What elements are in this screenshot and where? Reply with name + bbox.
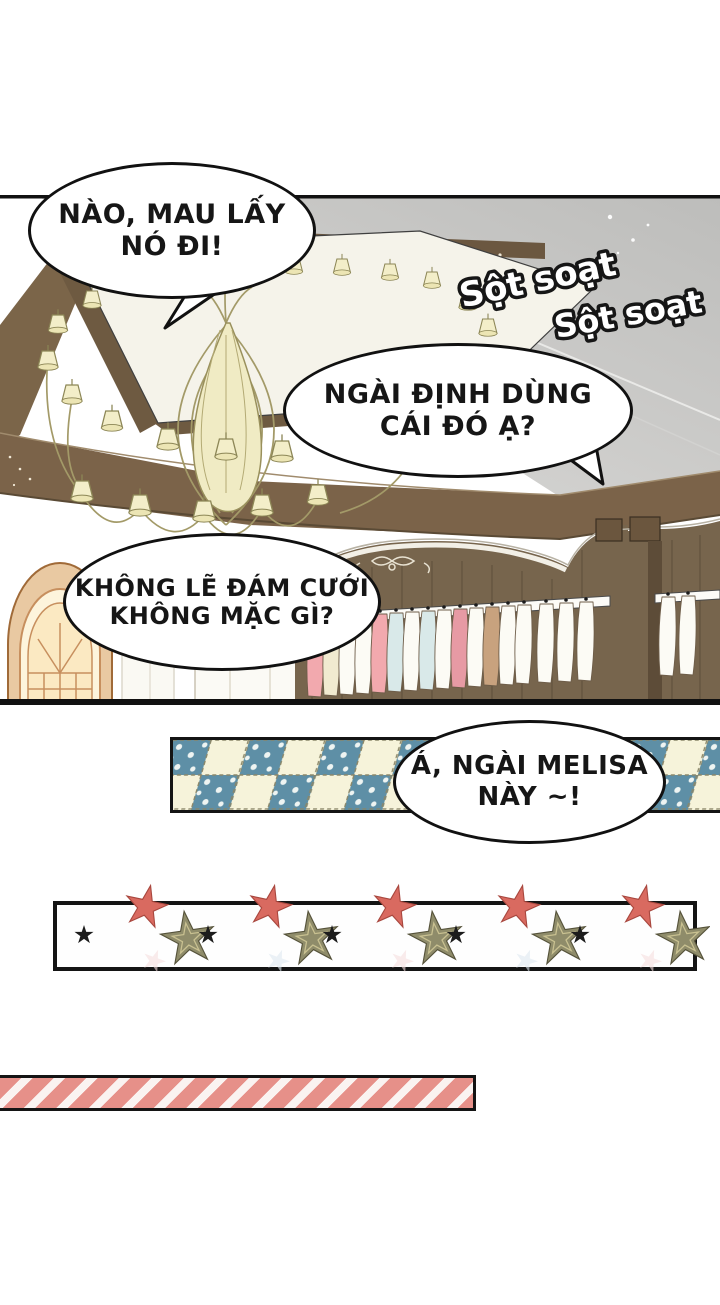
- speech-bubble-question: NGÀI ĐỊNH DÙNG CÁI ĐÓ Ạ?: [283, 343, 633, 478]
- speech-bubble-melisa: Á, NGÀI MELISA NÀY ~!: [393, 720, 666, 844]
- bubble-text: Á, NGÀI MELISA NÀY ~!: [411, 751, 648, 812]
- bubble-text: KHÔNG LẼ ĐÁM CƯỚI KHÔNG MẶC GÌ?: [75, 574, 369, 631]
- speech-bubble-urge: NÀO, MAU LẤY NÓ ĐI!: [28, 162, 316, 299]
- comic-page: Sột soạt Sột soạt: [0, 0, 720, 1305]
- bubble-text: NÀO, MAU LẤY NÓ ĐI!: [58, 199, 285, 263]
- bubble-text: NGÀI ĐỊNH DÙNG CÁI ĐÓ Ạ?: [324, 379, 592, 443]
- speech-bubble-wedding: KHÔNG LẼ ĐÁM CƯỚI KHÔNG MẶC GÌ?: [63, 533, 381, 671]
